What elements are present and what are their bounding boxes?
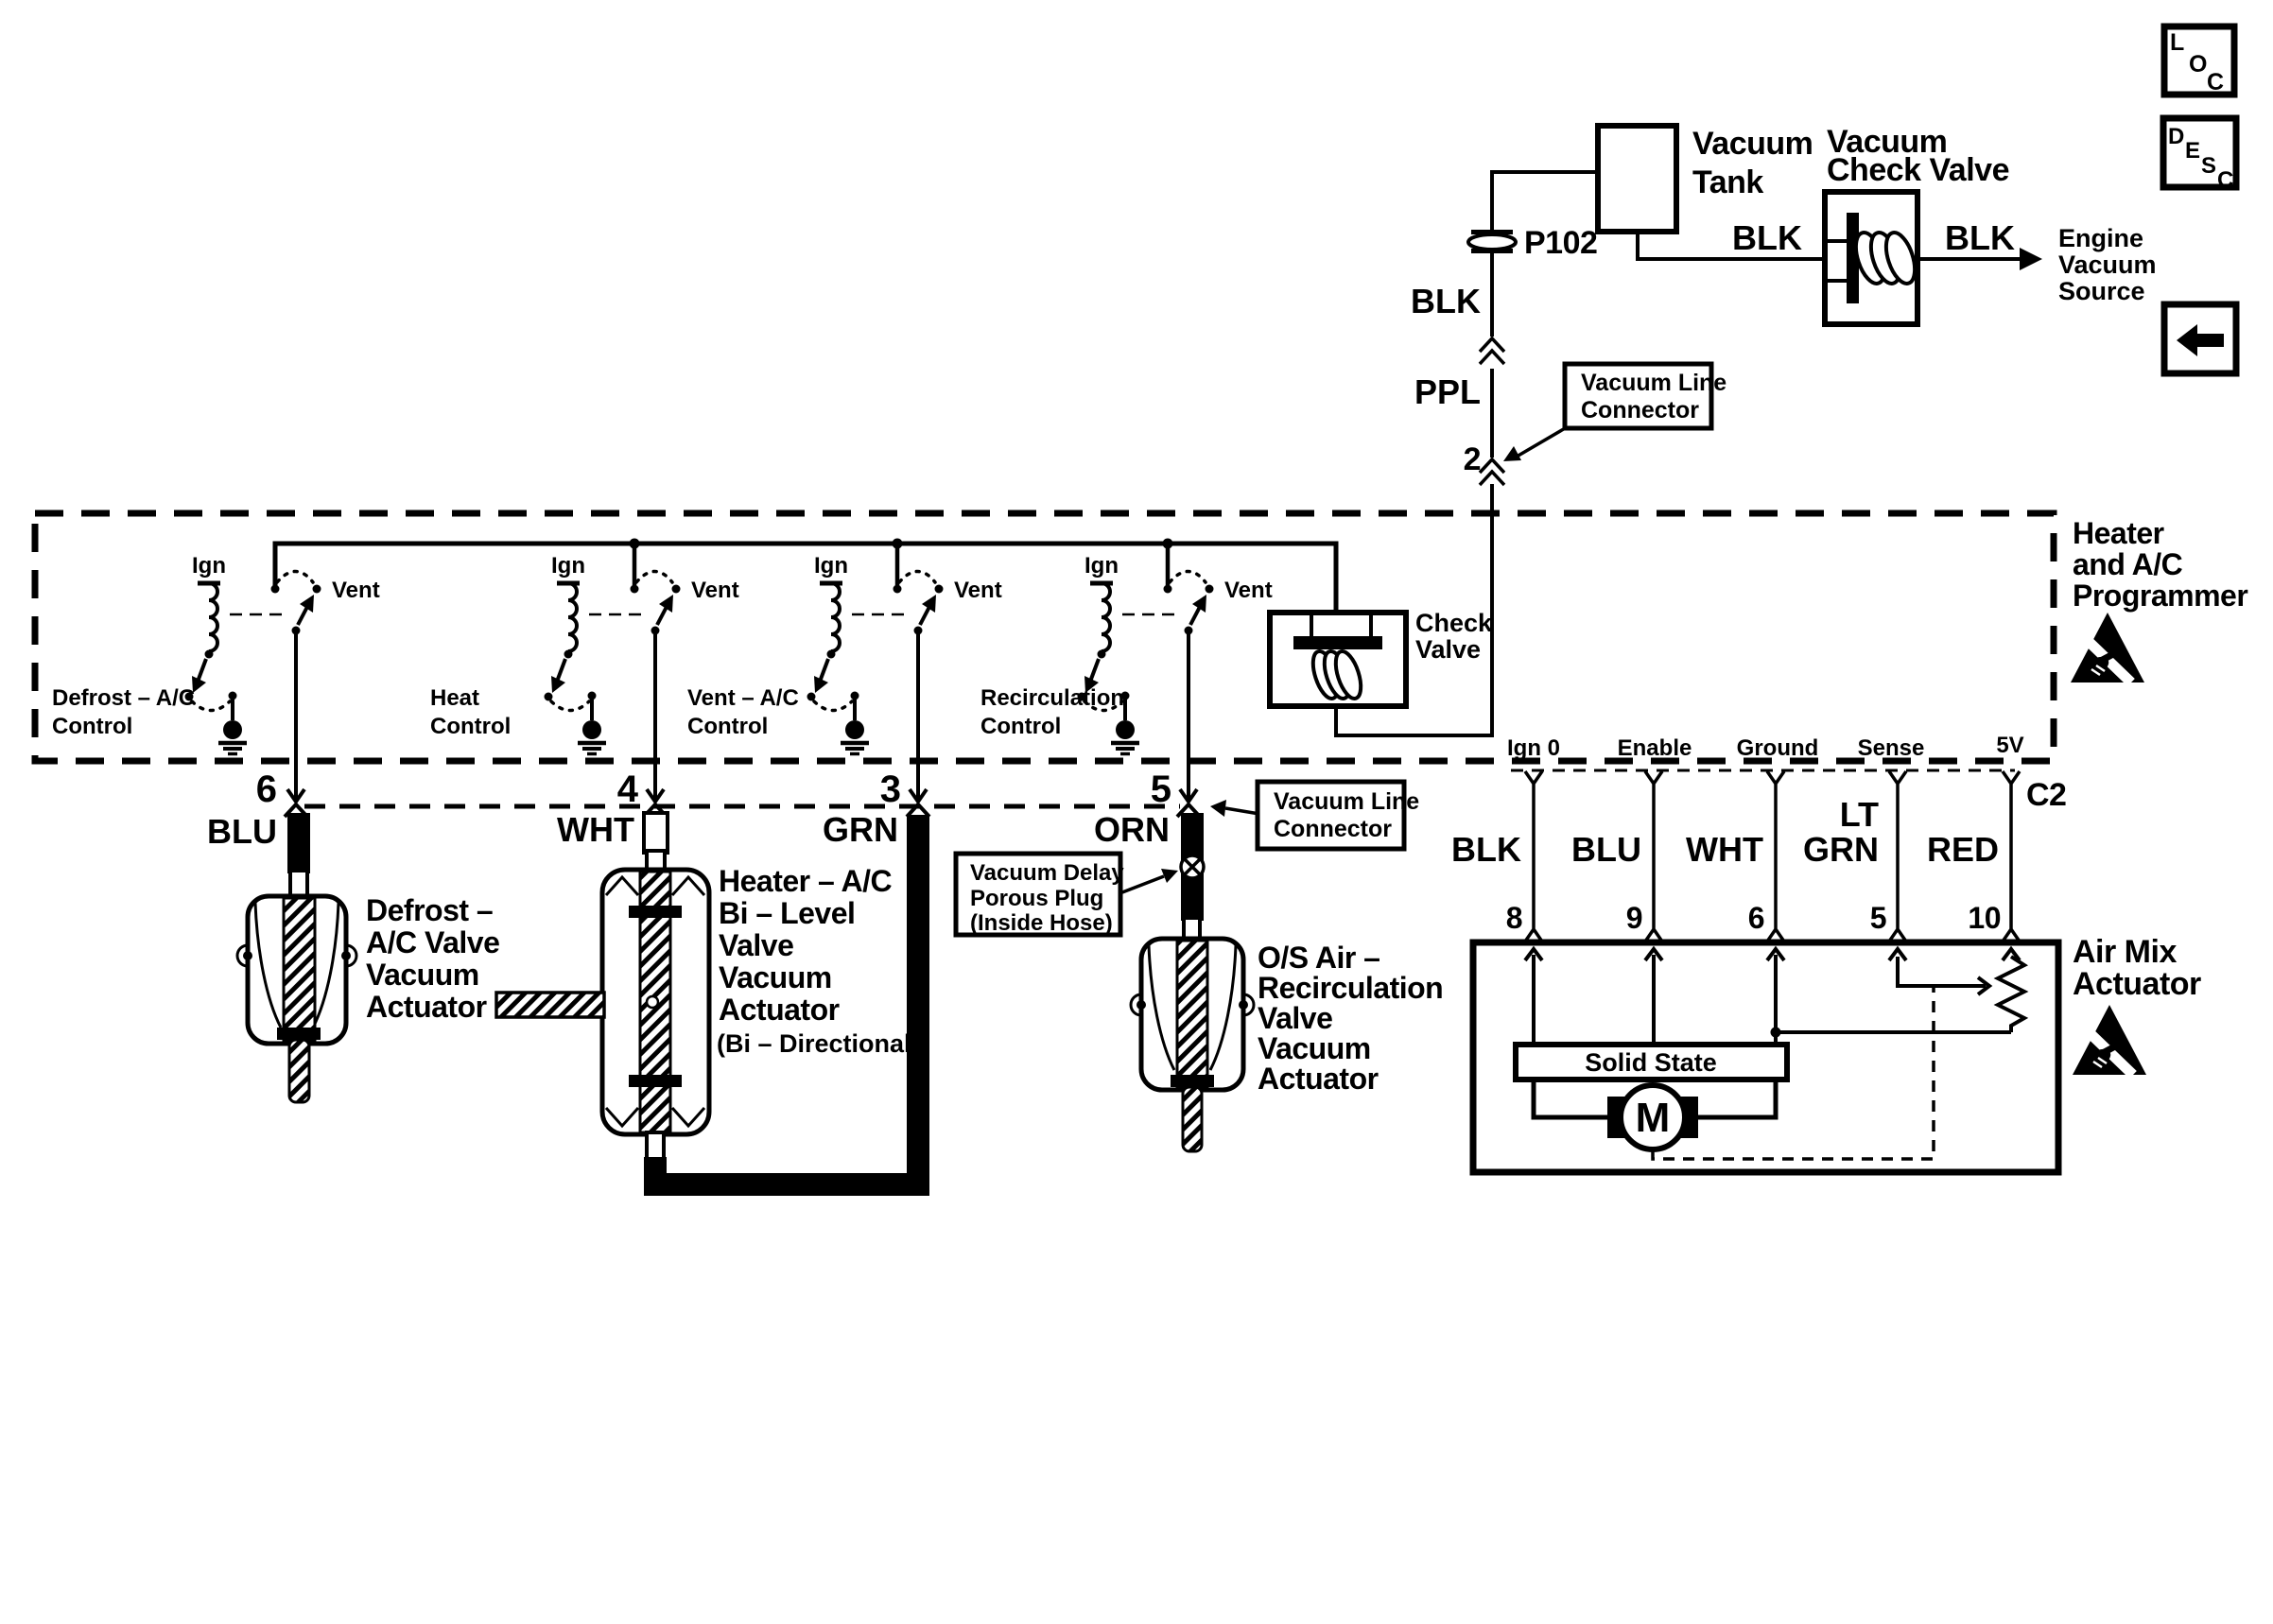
motor-label: M: [1636, 1095, 1671, 1141]
air-mix-circuit: Ign 0 Enable Ground Sense 5V C2 BLK BLU …: [1451, 733, 2201, 1172]
engine-source-label-3: Source: [2058, 277, 2145, 305]
actuator-shaft: [1183, 1087, 1202, 1151]
os-air-label-5: Actuator: [1258, 1062, 1379, 1096]
defrost-actuator: Defrost – A/C Valve Vacuum Actuator: [237, 813, 499, 1102]
port-2-label: 2: [1464, 441, 1481, 477]
os-air-label-2: Recirculation: [1258, 971, 1443, 1005]
pin-name-ground: Ground: [1737, 735, 1819, 761]
pin-number-10: 10: [1968, 901, 2001, 935]
control-label-3b: Control: [687, 714, 768, 739]
programmer-check-valve: [1270, 613, 1406, 706]
wire-label-blk-drop: BLK: [1411, 282, 1481, 320]
loc-letter-c: C: [2207, 69, 2224, 95]
vacuum-tank-label-2: Tank: [1692, 164, 1763, 200]
switch-unit-heat: [545, 544, 681, 817]
os-air-label-1: O/S Air –: [1258, 941, 1379, 975]
loc-letter-l: L: [2170, 29, 2184, 56]
bilevel-label-1: Heater – A/C: [719, 864, 893, 898]
control-label-1a: Defrost – A/C: [52, 685, 195, 711]
wire-label-ppl: PPL: [1414, 372, 1481, 411]
vent-label-3: Vent: [954, 578, 1002, 603]
bilevel-label-4: Vacuum: [719, 960, 832, 994]
wire-label-orn: ORN: [1094, 810, 1170, 849]
programmer-title-2: and A/C: [2073, 547, 2183, 581]
ign-label-3: Ign: [814, 553, 848, 579]
port-6-number: 6: [256, 769, 277, 810]
p102-connector-icon: [1468, 230, 1516, 253]
supply-drop-line: [1480, 251, 1504, 737]
control-label-1b: Control: [52, 714, 132, 739]
p102-label: P102: [1524, 225, 1597, 261]
hvac-vacuum-schematic: L O C D E S C Vacuum Tank BLK P102: [0, 0, 2273, 1624]
pin-number-8: 8: [1506, 901, 1522, 935]
bilevel-label-3: Valve: [719, 928, 793, 962]
pin-name-ign0: Ign 0: [1507, 735, 1560, 761]
programmer-title-1: Heater: [2073, 516, 2164, 550]
esd-warning-icon: [2071, 613, 2144, 682]
pin-name-sense: Sense: [1858, 735, 1925, 761]
vacuum-check-valve: [1825, 192, 1920, 324]
vacuum-tank: [1598, 126, 1676, 232]
vacuum-line-connector-callout-2: Vacuum Line Connector: [1210, 782, 1419, 849]
vent-bus-line: [275, 544, 1336, 611]
engine-source-label-2: Vacuum: [2058, 251, 2157, 279]
vent-label-2: Vent: [691, 578, 739, 603]
switch-unit-vent-ac: [807, 544, 944, 817]
hose-blu: [287, 813, 310, 873]
wire-label-wht6: WHT: [1686, 830, 1763, 869]
solid-state-label: Solid State: [1585, 1048, 1717, 1077]
check-valve-label-2: Check Valve: [1827, 152, 2009, 188]
back-button[interactable]: [2164, 304, 2236, 373]
vacuum-port-row: 6 4 3 5 BLU WHT GRN ORN: [207, 769, 1180, 851]
actuator-screw: [1177, 941, 1207, 1086]
desc-letter-d: D: [2168, 124, 2184, 149]
engine-source-label-1: Engine: [2058, 224, 2143, 252]
control-label-4b: Control: [980, 714, 1061, 739]
toolbar: L O C D E S C: [2163, 26, 2236, 373]
control-label-2b: Control: [430, 714, 511, 739]
actuator-side-shaft: [496, 993, 604, 1017]
programmer-title-3: Programmer: [2073, 579, 2247, 613]
pin-number-5: 5: [1870, 901, 1886, 935]
check-valve-feed-line: [1336, 706, 1492, 735]
wire-label-blu9: BLU: [1571, 830, 1641, 869]
vacuum-tank-label-1: Vacuum: [1692, 126, 1813, 162]
desc-letter-e: E: [2185, 138, 2200, 164]
control-label-4a: Recirculation: [980, 685, 1124, 711]
defrost-label-3: Vacuum: [366, 958, 479, 992]
porous-callout-line-3: (Inside Hose): [970, 910, 1113, 936]
control-label-3a: Vent – A/C: [687, 685, 799, 711]
wire-label-blk-tank: BLK: [1732, 218, 1802, 257]
ground-junction: [1771, 1028, 1781, 1038]
ign-label-4: Ign: [1084, 553, 1119, 579]
callout-line-2: Connector: [1581, 397, 1699, 423]
loc-letter-o: O: [2189, 51, 2207, 78]
wire-label-blu: BLU: [207, 812, 277, 851]
port-4-number: 4: [617, 769, 639, 810]
vacuum-diagram-page: L O C D E S C Vacuum Tank BLK P102: [0, 0, 2273, 1624]
callout-arrow-icon: [1210, 800, 1226, 817]
bilevel-label-2: Bi – Level: [719, 896, 855, 930]
inline-connector-icon: [1480, 338, 1504, 364]
port-3-number: 3: [880, 769, 901, 810]
ign-label-2: Ign: [551, 553, 585, 579]
os-air-actuator: O/S Air – Recirculation Valve Vacuum Act…: [1131, 813, 1443, 1151]
vent-label-1: Vent: [332, 578, 380, 603]
os-air-label-4: Vacuum: [1258, 1031, 1371, 1065]
ign-label-1: Ign: [192, 553, 226, 579]
wire-label-ltgrn-1: LT: [1840, 795, 1879, 834]
wire-label-blk8: BLK: [1451, 830, 1521, 869]
os-air-label-3: Valve: [1258, 1001, 1332, 1035]
switch-unit-recirculation: [1078, 544, 1214, 817]
porous-plug-icon: [1181, 855, 1204, 878]
vacuum-supply: Vacuum Tank BLK P102 Vacuum Check Valve …: [1411, 124, 2157, 737]
vacuum-line-connector-callout-1: Vacuum Line Connector: [1503, 364, 1726, 461]
defrost-label-2: A/C Valve: [366, 925, 499, 959]
defrost-label-1: Defrost –: [366, 893, 493, 927]
wire-label-blk-engine: BLK: [1945, 218, 2015, 257]
pin-number-9: 9: [1626, 901, 1642, 935]
wire-label-ltgrn-2: GRN: [1803, 830, 1879, 869]
pin-number-6: 6: [1748, 901, 1764, 935]
porous-callout-line-2: Porous Plug: [970, 886, 1103, 911]
desc-letter-s: S: [2201, 153, 2216, 179]
callout2-line-2: Connector: [1274, 816, 1392, 842]
engine-arrow-icon: [2020, 248, 2042, 270]
actuator-shaft: [289, 1040, 309, 1102]
bilevel-label-5: Actuator: [719, 993, 840, 1027]
tank-feed-line: [1492, 172, 1598, 232]
port-5-number: 5: [1151, 769, 1171, 810]
wire-label-grn: GRN: [823, 810, 898, 849]
inline-connector-icon: [1480, 459, 1504, 485]
esd-warning-icon: [2073, 1005, 2146, 1075]
air-mix-title-2: Actuator: [2073, 966, 2201, 1002]
pin-name-5v: 5V: [1996, 733, 2023, 758]
connector-c2-label: C2: [2026, 777, 2066, 813]
loc-button[interactable]: L O C: [2164, 26, 2234, 95]
wire-label-wht: WHT: [557, 810, 634, 849]
check-valve-inner-label-1: Check: [1415, 609, 1493, 637]
bilevel-actuator: Heater – A/C Bi – Level Valve Vacuum Act…: [496, 813, 920, 1184]
desc-letter-c: C: [2217, 167, 2233, 193]
vent-label-4: Vent: [1224, 578, 1273, 603]
defrost-label-4: Actuator: [366, 990, 487, 1024]
wire-label-red10: RED: [1927, 830, 1999, 869]
check-valve-inner-label-2: Valve: [1415, 635, 1481, 664]
callout2-line-1: Vacuum Line: [1274, 788, 1419, 815]
bilevel-note: (Bi – Directional): [717, 1029, 920, 1058]
porous-callout-line-1: Vacuum Delay: [970, 860, 1124, 886]
callout-line-1: Vacuum Line: [1581, 370, 1726, 396]
pin-name-enable: Enable: [1618, 735, 1692, 761]
air-mix-title-1: Air Mix: [2073, 934, 2177, 970]
porous-plug-callout: Vacuum Delay Porous Plug (Inside Hose): [956, 854, 1178, 936]
actuator-screw: [284, 898, 315, 1040]
desc-button[interactable]: D E S C: [2163, 118, 2236, 193]
control-label-2a: Heat: [430, 685, 479, 711]
switch-unit-defrost-ac: [185, 544, 321, 817]
